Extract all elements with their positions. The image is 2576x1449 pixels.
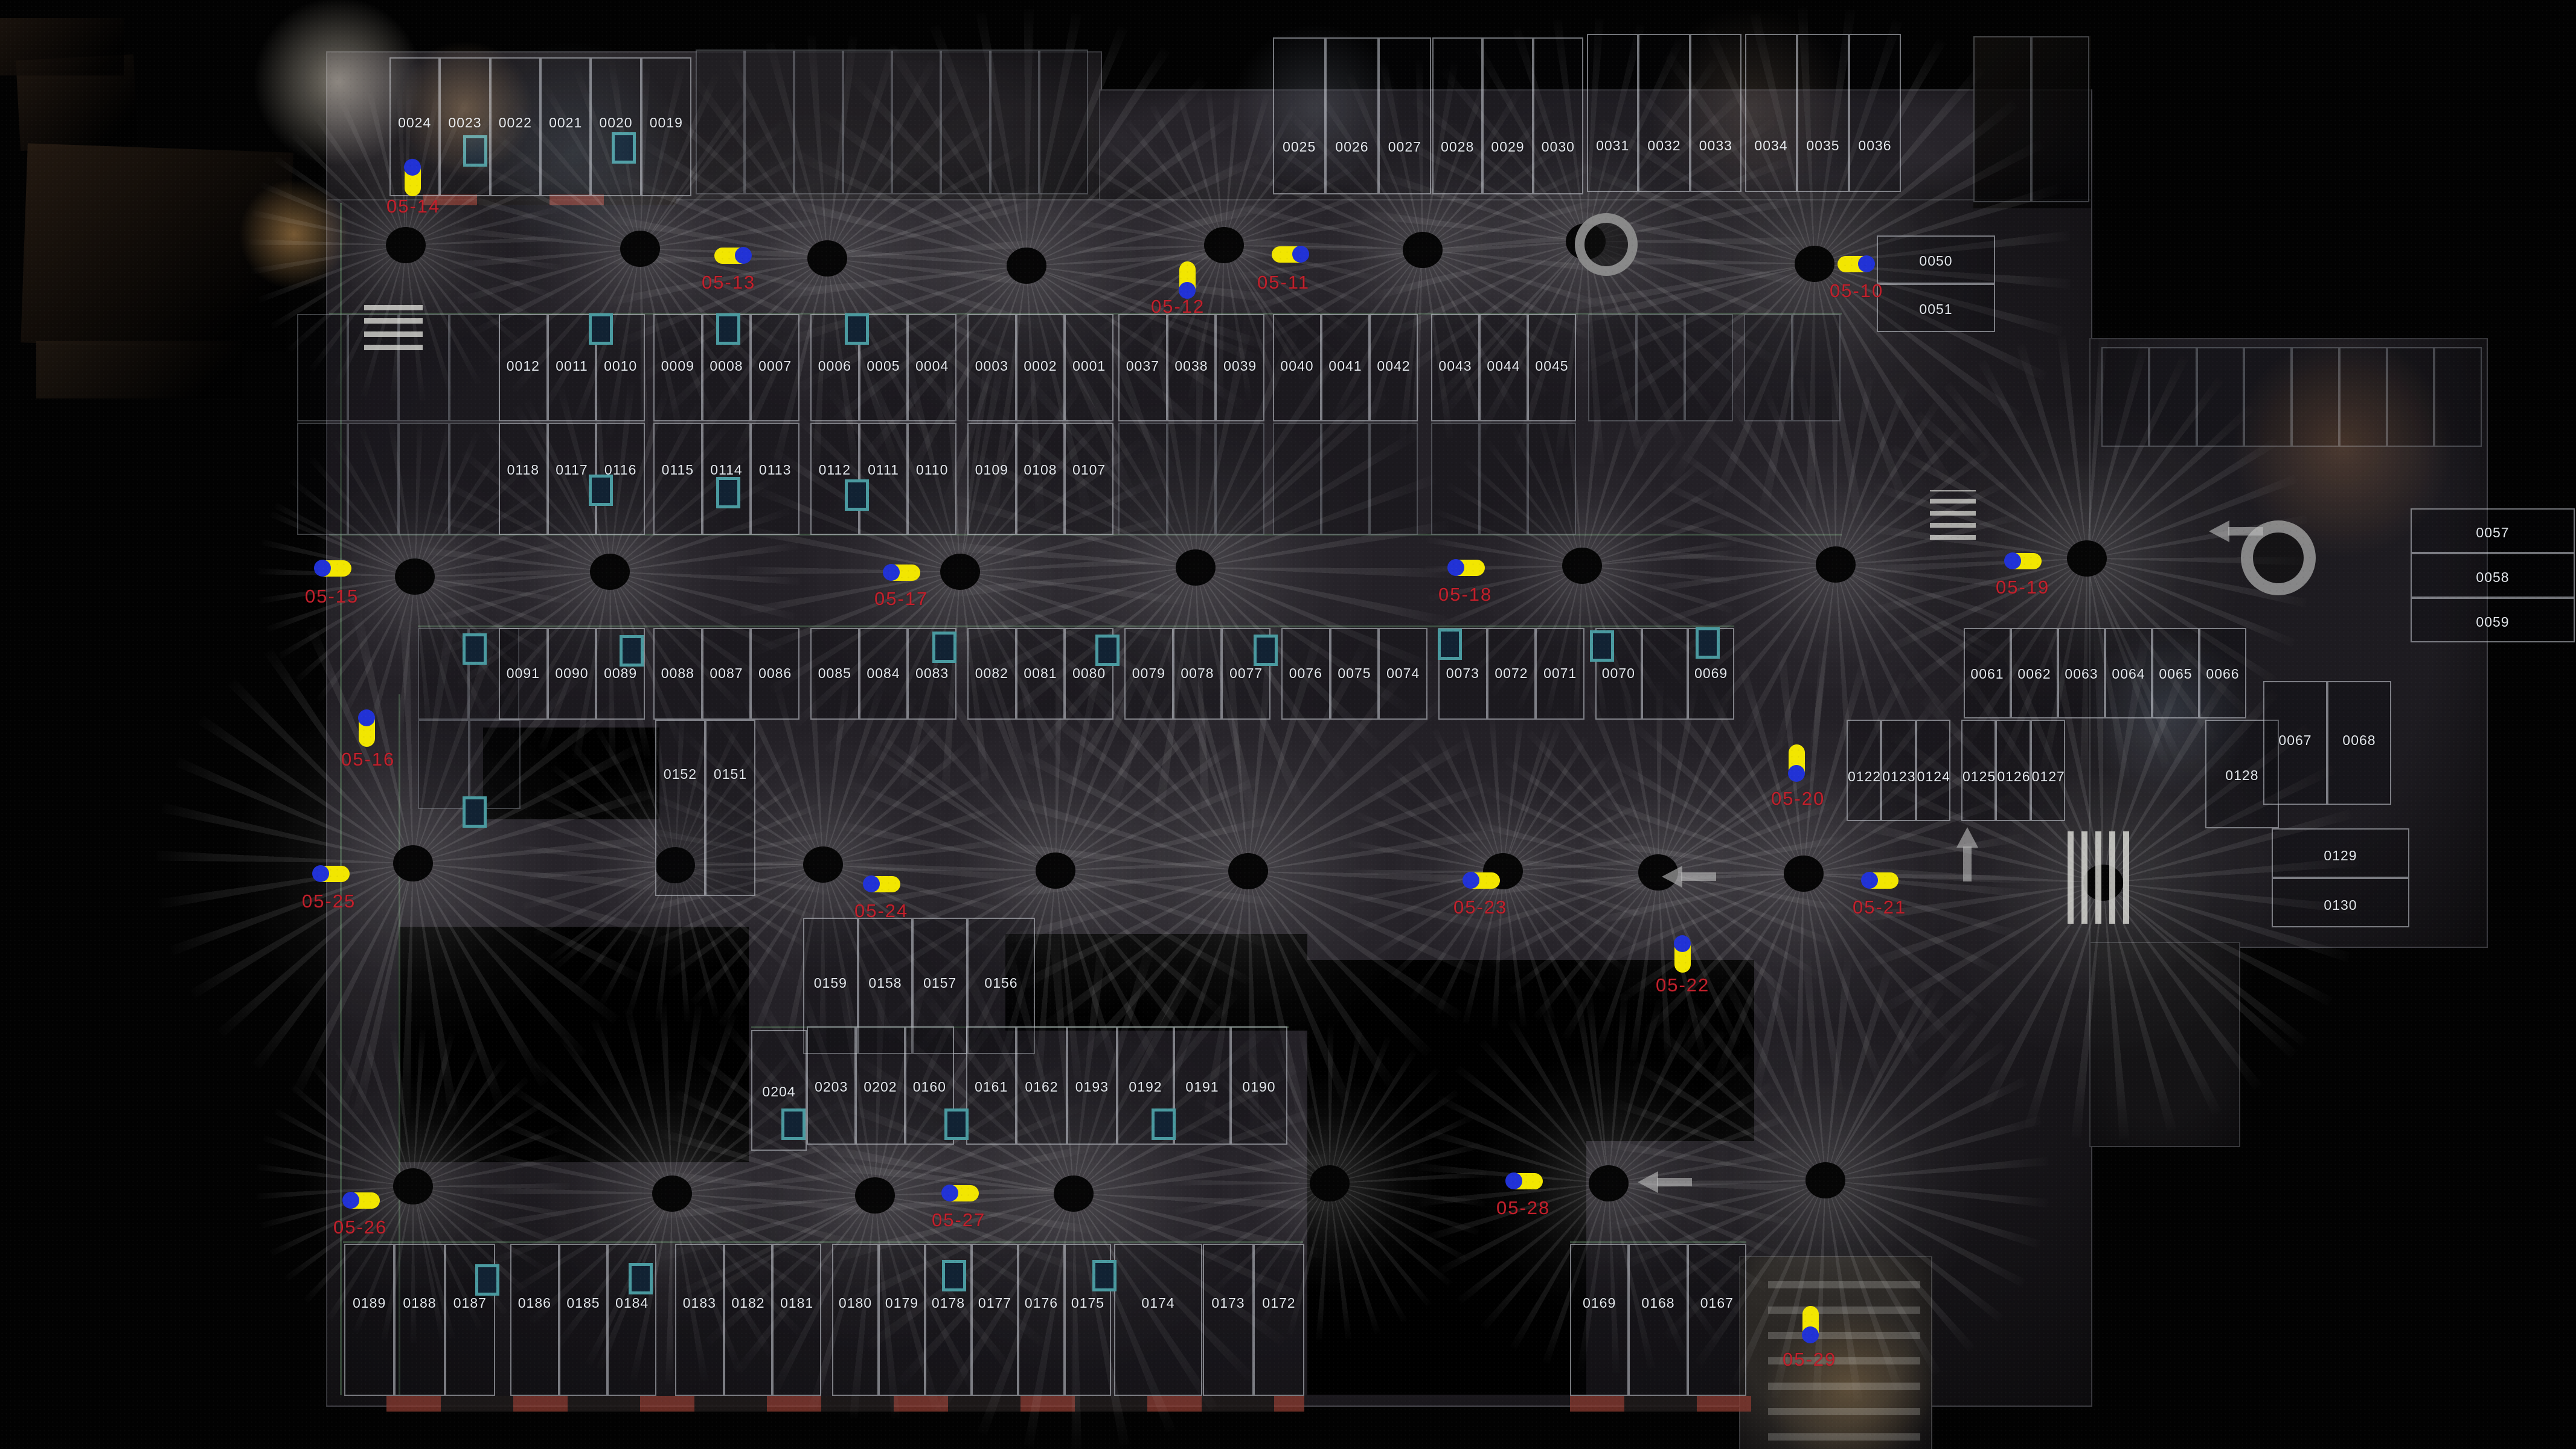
utility-door-box	[845, 313, 869, 345]
parking-stall	[1118, 423, 1167, 535]
scan-station-label: 05-23	[1453, 897, 1507, 918]
parking-stall	[941, 50, 990, 194]
stall-number: 0113	[752, 462, 798, 478]
stall-number: 0033	[1691, 138, 1740, 154]
parking-stall: 0181	[772, 1244, 821, 1396]
stall-number: 0043	[1432, 358, 1478, 374]
stall-number: 0082	[969, 665, 1015, 682]
stall-number: 0184	[609, 1295, 655, 1311]
stall-number: 0028	[1434, 139, 1481, 155]
parking-stall	[1039, 50, 1088, 194]
lane-edge-line	[1570, 1241, 1746, 1243]
stall-number: 0108	[1017, 462, 1064, 478]
scan-position-dot[interactable]	[1228, 853, 1268, 889]
stall-number: 0035	[1798, 138, 1848, 154]
parking-stall	[2197, 347, 2244, 447]
wall-marking-band	[1570, 1396, 1751, 1412]
stall-number: 0180	[833, 1295, 877, 1311]
parking-stall: 0113	[751, 423, 799, 535]
parking-stall: 0012	[499, 314, 548, 421]
parking-stall: 0174	[1114, 1244, 1202, 1396]
utility-door-box	[463, 135, 487, 167]
stall-number: 0038	[1168, 358, 1215, 374]
stall-number: 0031	[1588, 138, 1637, 154]
parking-stall	[2031, 36, 2089, 202]
parking-stall: 0082	[967, 628, 1016, 720]
parking-stall	[990, 50, 1039, 194]
stall-number: 0081	[1017, 665, 1064, 682]
stall-number: 0076	[1283, 665, 1329, 682]
parking-stall: 0039	[1216, 314, 1264, 421]
direction-arrow-marking	[2209, 520, 2267, 542]
parking-stall: 0003	[967, 314, 1016, 421]
parking-stall	[1636, 314, 1685, 421]
scan-position-dot[interactable]	[2067, 540, 2107, 577]
parking-stall: 0026	[1325, 37, 1378, 194]
parking-stall: 0058	[2411, 553, 2575, 598]
parking-stall: 0020	[591, 57, 641, 196]
parking-stall: 0071	[1536, 628, 1584, 720]
scan-station-marker-cap	[358, 709, 375, 726]
garage-floor-area	[2089, 942, 2240, 1147]
stall-number: 0159	[804, 975, 857, 991]
stall-number: 0123	[1882, 769, 1914, 785]
parking-stall: 0002	[1016, 314, 1065, 421]
stall-number: 0066	[2200, 666, 2245, 682]
parking-stall: 0059	[2411, 598, 2575, 642]
parking-stall: 0084	[859, 628, 908, 720]
parking-stall: 0179	[879, 1244, 925, 1396]
utility-door-box	[589, 313, 613, 345]
stall-number: 0045	[1529, 358, 1575, 374]
stall-number: 0088	[655, 665, 701, 682]
stall-number: 0040	[1274, 358, 1320, 374]
stall-number: 0178	[926, 1295, 970, 1311]
parking-stall: 0152	[655, 720, 705, 896]
arrow-shaft	[1681, 872, 1716, 881]
scan-position-dot[interactable]	[1204, 227, 1244, 263]
unscanned-void	[399, 927, 749, 1162]
parking-stall	[2292, 347, 2339, 447]
stall-number: 0156	[969, 975, 1034, 991]
stall-number: 0111	[860, 462, 907, 478]
stall-number: 0174	[1115, 1295, 1201, 1311]
utility-door-box	[1095, 635, 1120, 666]
scan-position-dot[interactable]	[386, 227, 426, 263]
scan-station-marker-cap	[1505, 1172, 1522, 1189]
stall-number: 0109	[969, 462, 1015, 478]
stall-number: 0009	[655, 358, 701, 374]
stall-number: 0036	[1850, 138, 1900, 154]
stall-number: 0019	[642, 115, 690, 131]
parking-stall: 0051	[1877, 284, 1995, 332]
scan-position-dot[interactable]	[803, 846, 843, 883]
stall-number: 0065	[2153, 666, 2198, 682]
arrow-head-icon	[1638, 1171, 1658, 1193]
arrow-head-icon	[2209, 520, 2229, 542]
stall-number: 0021	[542, 115, 589, 131]
parking-stall: 0130	[2272, 878, 2409, 927]
parking-stall: 0091	[499, 628, 548, 720]
utility-door-box	[716, 477, 740, 508]
parking-stall: 0007	[751, 314, 799, 421]
scan-station-label: 05-15	[305, 586, 359, 607]
utility-door-box	[1696, 627, 1720, 659]
stall-number: 0023	[441, 115, 489, 131]
parking-stall	[1973, 36, 2031, 202]
stall-number: 0057	[2412, 525, 2574, 541]
parking-stall: 0050	[1877, 235, 1995, 284]
parking-stall	[1744, 314, 1792, 421]
scan-position-dot[interactable]	[807, 240, 847, 277]
utility-door-box	[1438, 629, 1462, 660]
parking-stall: 0129	[2272, 828, 2409, 878]
parking-stall	[1370, 423, 1418, 535]
scan-position-dot[interactable]	[395, 558, 435, 595]
stall-number: 0110	[909, 462, 955, 478]
parking-stall	[2101, 347, 2149, 447]
stall-number: 0008	[703, 358, 750, 374]
stall-number: 0051	[1878, 301, 1994, 318]
parking-stall: 0085	[810, 628, 859, 720]
parking-stall	[892, 50, 941, 194]
scan-position-dot[interactable]	[1054, 1176, 1094, 1212]
scan-position-dot[interactable]	[1007, 248, 1046, 284]
parking-stall: 0088	[653, 628, 702, 720]
scan-station-label: 05-16	[341, 749, 395, 770]
pointcloud-fragment	[21, 143, 293, 351]
scan-position-dot[interactable]	[1036, 852, 1075, 889]
lane-edge-line	[418, 625, 1734, 627]
parking-stall: 0193	[1067, 1026, 1117, 1145]
parking-stall: 0162	[1016, 1026, 1066, 1145]
parking-stall: 0027	[1379, 37, 1431, 194]
scan-position-dot[interactable]	[1310, 1165, 1350, 1201]
scan-station-marker-cap	[883, 564, 900, 581]
parking-stall: 0043	[1431, 314, 1479, 421]
parking-stall	[1167, 423, 1216, 535]
utility-door-box	[1590, 630, 1614, 662]
scan-station-marker-cap	[1858, 255, 1875, 272]
parking-stall: 0172	[1254, 1244, 1304, 1396]
stall-number: 0151	[706, 766, 754, 782]
stall-number: 0168	[1630, 1295, 1686, 1311]
parking-stall	[745, 50, 793, 194]
stall-number: 0029	[1484, 139, 1531, 155]
parking-stall: 0004	[908, 314, 956, 421]
pointcloud-fragment	[0, 18, 124, 75]
parking-stall: 0188	[394, 1244, 444, 1396]
stall-number: 0126	[1997, 769, 2029, 785]
stall-number: 0186	[511, 1295, 558, 1311]
scan-position-dot[interactable]	[620, 231, 660, 267]
parking-stall: 0151	[705, 720, 755, 896]
stall-number: 0041	[1322, 358, 1368, 374]
scan-station-label: 05-13	[702, 272, 755, 293]
parking-stall: 0022	[490, 57, 540, 196]
parking-stall	[1479, 423, 1528, 535]
parking-stall: 0019	[641, 57, 691, 196]
utility-door-box	[716, 313, 740, 345]
utility-door-box	[944, 1108, 969, 1140]
utility-door-box	[1152, 1108, 1176, 1140]
stall-number: 0087	[703, 665, 750, 682]
utility-door-box	[845, 479, 869, 511]
parking-stall	[2434, 347, 2482, 447]
parking-stall: 0023	[440, 57, 490, 196]
parking-stall: 0108	[1016, 423, 1065, 535]
scan-station-label: 05-29	[1783, 1349, 1836, 1371]
scan-position-dot[interactable]	[393, 1168, 433, 1204]
parking-stall: 0079	[1124, 628, 1173, 720]
stall-number: 0090	[549, 665, 595, 682]
stall-number: 0001	[1066, 358, 1112, 374]
arrow-head-icon	[1662, 866, 1682, 888]
scan-position-dot[interactable]	[1784, 856, 1824, 892]
stall-number: 0080	[1066, 665, 1112, 682]
stall-number: 0010	[597, 358, 644, 374]
parking-stall: 0033	[1690, 34, 1741, 192]
crosswalk-marking	[1930, 490, 1976, 540]
parking-stall	[297, 423, 348, 535]
scan-position-dot[interactable]	[393, 845, 433, 881]
stall-number: 0072	[1488, 665, 1535, 682]
parking-stall: 0185	[559, 1244, 608, 1396]
parking-stall	[1431, 423, 1479, 535]
direction-arrow-marking	[1956, 827, 1978, 885]
parking-stall	[449, 423, 500, 535]
stall-number: 0058	[2412, 569, 2574, 586]
stall-number: 0083	[909, 665, 955, 682]
parking-stall: 0035	[1797, 34, 1849, 192]
scan-station-marker-cap	[1802, 1326, 1819, 1343]
stall-number: 0042	[1371, 358, 1417, 374]
stall-number: 0203	[808, 1079, 854, 1095]
parking-stall	[399, 423, 449, 535]
stall-number: 0012	[500, 358, 546, 374]
stall-number: 0067	[2264, 732, 2326, 749]
scan-station-label: 05-14	[386, 196, 440, 217]
stall-number: 0161	[967, 1079, 1015, 1095]
utility-door-box	[942, 1260, 966, 1291]
scan-position-dot[interactable]	[652, 1176, 692, 1212]
parking-stall: 0126	[1996, 720, 2030, 821]
scan-station-label: 05-11	[1257, 272, 1310, 293]
stall-number: 0079	[1126, 665, 1172, 682]
parking-stall	[2244, 347, 2292, 447]
stall-number: 0062	[2012, 666, 2057, 682]
stall-number: 0030	[1534, 139, 1582, 155]
lane-edge-line	[343, 1241, 1303, 1243]
parking-stall	[2149, 347, 2197, 447]
parking-stall	[696, 50, 745, 194]
parking-stall	[469, 720, 521, 809]
parking-stall: 0078	[1173, 628, 1222, 720]
stall-number: 0037	[1120, 358, 1166, 374]
scan-station-marker-cap	[941, 1185, 958, 1201]
parking-stall	[1792, 314, 1841, 421]
stall-number: 0172	[1255, 1295, 1303, 1311]
parking-stall	[1642, 628, 1688, 720]
parking-stall: 0186	[510, 1244, 559, 1396]
scan-station-label: 05-21	[1853, 897, 1906, 918]
utility-door-box	[1254, 635, 1278, 666]
scan-station-marker-cap	[1674, 935, 1691, 952]
parking-stall: 0191	[1174, 1026, 1231, 1145]
parking-stall: 0032	[1638, 34, 1690, 192]
scan-station-marker-cap	[314, 560, 331, 577]
stall-number: 0115	[655, 462, 701, 478]
parking-stall: 0030	[1533, 37, 1583, 194]
stall-number: 0162	[1017, 1079, 1065, 1095]
parking-stall: 0168	[1629, 1244, 1687, 1396]
stall-number: 0007	[752, 358, 798, 374]
utility-door-box	[475, 1264, 499, 1296]
stall-number: 0024	[391, 115, 438, 131]
scan-station-label: 05-12	[1151, 296, 1205, 318]
stall-number: 0183	[676, 1295, 723, 1311]
wall-marking-band	[386, 1396, 1304, 1412]
parking-stall	[1321, 423, 1370, 535]
stall-number: 0077	[1223, 665, 1269, 682]
parking-stall: 0127	[2031, 720, 2065, 821]
parking-stall: 0203	[807, 1026, 856, 1145]
parking-stall: 0034	[1745, 34, 1797, 192]
parking-stall: 0109	[967, 423, 1016, 535]
scan-position-dot[interactable]	[1805, 1162, 1845, 1198]
stall-number: 0026	[1327, 139, 1377, 155]
stall-number: 0189	[345, 1295, 393, 1311]
stall-number: 0192	[1118, 1079, 1173, 1095]
scan-station-label: 05-19	[1996, 577, 2049, 598]
stall-number: 0085	[812, 665, 858, 682]
stall-number: 0091	[500, 665, 546, 682]
parking-stall: 0189	[344, 1244, 394, 1396]
stall-number: 0157	[914, 975, 966, 991]
stall-number: 0188	[396, 1295, 443, 1311]
scan-position-dot[interactable]	[1562, 548, 1602, 584]
parking-stall: 0086	[751, 628, 799, 720]
pointcloud-map-canvas[interactable]: 0024002300220021002000190025002600270028…	[0, 0, 2576, 1449]
parking-stall	[418, 720, 469, 809]
scan-position-dot[interactable]	[855, 1177, 895, 1214]
crosswalk-marking	[364, 297, 423, 350]
arrow-shaft	[2228, 527, 2263, 536]
parking-stall	[297, 314, 348, 421]
parking-stall	[1685, 314, 1733, 421]
stall-number: 0117	[549, 462, 595, 478]
parking-stall: 0042	[1370, 314, 1418, 421]
parking-stall: 0124	[1916, 720, 1950, 821]
stall-number: 0125	[1962, 769, 1994, 785]
parking-stall	[794, 50, 843, 194]
stall-number: 0073	[1440, 665, 1486, 682]
parking-stall: 0176	[1018, 1244, 1065, 1396]
stall-number: 0050	[1878, 253, 1994, 269]
arrow-head-icon	[1956, 827, 1978, 848]
stall-number: 0169	[1571, 1295, 1627, 1311]
parking-stall: 0028	[1432, 37, 1482, 194]
scan-station-label: 05-20	[1771, 788, 1825, 810]
stall-number: 0020	[592, 115, 639, 131]
utility-door-box	[612, 132, 636, 164]
parking-stall: 0031	[1587, 34, 1638, 192]
scan-station-marker-cap	[312, 865, 329, 882]
parking-stall: 0037	[1118, 314, 1167, 421]
parking-stall: 0167	[1688, 1244, 1746, 1396]
parking-stall: 0021	[540, 57, 591, 196]
scan-position-dot[interactable]	[1589, 1165, 1629, 1201]
parking-stall: 0190	[1231, 1026, 1287, 1145]
stall-number: 0177	[973, 1295, 1017, 1311]
utility-door-box	[629, 1263, 653, 1294]
parking-stall	[449, 314, 500, 421]
stall-number: 0122	[1848, 769, 1880, 785]
parking-stall: 0067	[2263, 681, 2327, 805]
stall-number: 0074	[1380, 665, 1426, 682]
stall-number: 0175	[1066, 1295, 1110, 1311]
crosswalk-marking	[2068, 831, 2133, 924]
stall-number: 0075	[1331, 665, 1378, 682]
scan-station-marker-cap	[404, 159, 421, 176]
stall-number: 0070	[1597, 665, 1641, 682]
scan-position-dot[interactable]	[1816, 546, 1856, 583]
scan-station-marker-cap	[2004, 552, 2021, 569]
stall-number: 0152	[656, 766, 704, 782]
stall-number: 0005	[860, 358, 907, 374]
scan-station-label: 05-17	[874, 588, 928, 610]
scan-position-dot[interactable]	[1795, 246, 1834, 282]
stall-number: 0187	[446, 1295, 494, 1311]
scan-position-dot[interactable]	[1176, 549, 1216, 586]
scan-station-label: 05-27	[932, 1209, 985, 1231]
parking-stall: 0065	[2152, 628, 2199, 718]
scan-position-dot[interactable]	[1403, 232, 1443, 268]
parking-stall: 0169	[1570, 1244, 1629, 1396]
stall-number: 0011	[549, 358, 595, 374]
parking-stall: 0045	[1528, 314, 1576, 421]
stall-number: 0039	[1217, 358, 1263, 374]
parking-stall: 0107	[1065, 423, 1113, 535]
parking-stall: 0064	[2105, 628, 2152, 718]
stall-number: 0002	[1017, 358, 1064, 374]
scan-position-dot[interactable]	[940, 554, 980, 590]
stall-number: 0086	[752, 665, 798, 682]
scan-position-dot[interactable]	[590, 554, 630, 590]
parking-stall: 0068	[2327, 681, 2391, 805]
parking-stall: 0183	[675, 1244, 724, 1396]
stall-number: 0191	[1175, 1079, 1229, 1095]
utility-door-box	[463, 633, 487, 665]
stall-number: 0193	[1068, 1079, 1116, 1095]
unscanned-void	[1005, 934, 1307, 1031]
parking-stall: 0173	[1203, 1244, 1254, 1396]
parking-stall: 0009	[653, 314, 702, 421]
stall-number: 0032	[1639, 138, 1688, 154]
stall-number: 0118	[500, 462, 546, 478]
scan-station-marker-cap	[735, 247, 752, 264]
parking-stall: 0057	[2411, 508, 2575, 553]
stall-number: 0112	[812, 462, 858, 478]
stall-number: 0004	[909, 358, 955, 374]
utility-door-box	[781, 1108, 806, 1140]
utility-door-box	[1092, 1260, 1117, 1291]
pointcloud-fragment	[36, 341, 242, 398]
parking-stall: 0040	[1273, 314, 1321, 421]
parking-stall	[418, 628, 469, 720]
parking-stall: 0115	[653, 423, 702, 535]
parking-stall: 0062	[2011, 628, 2058, 718]
